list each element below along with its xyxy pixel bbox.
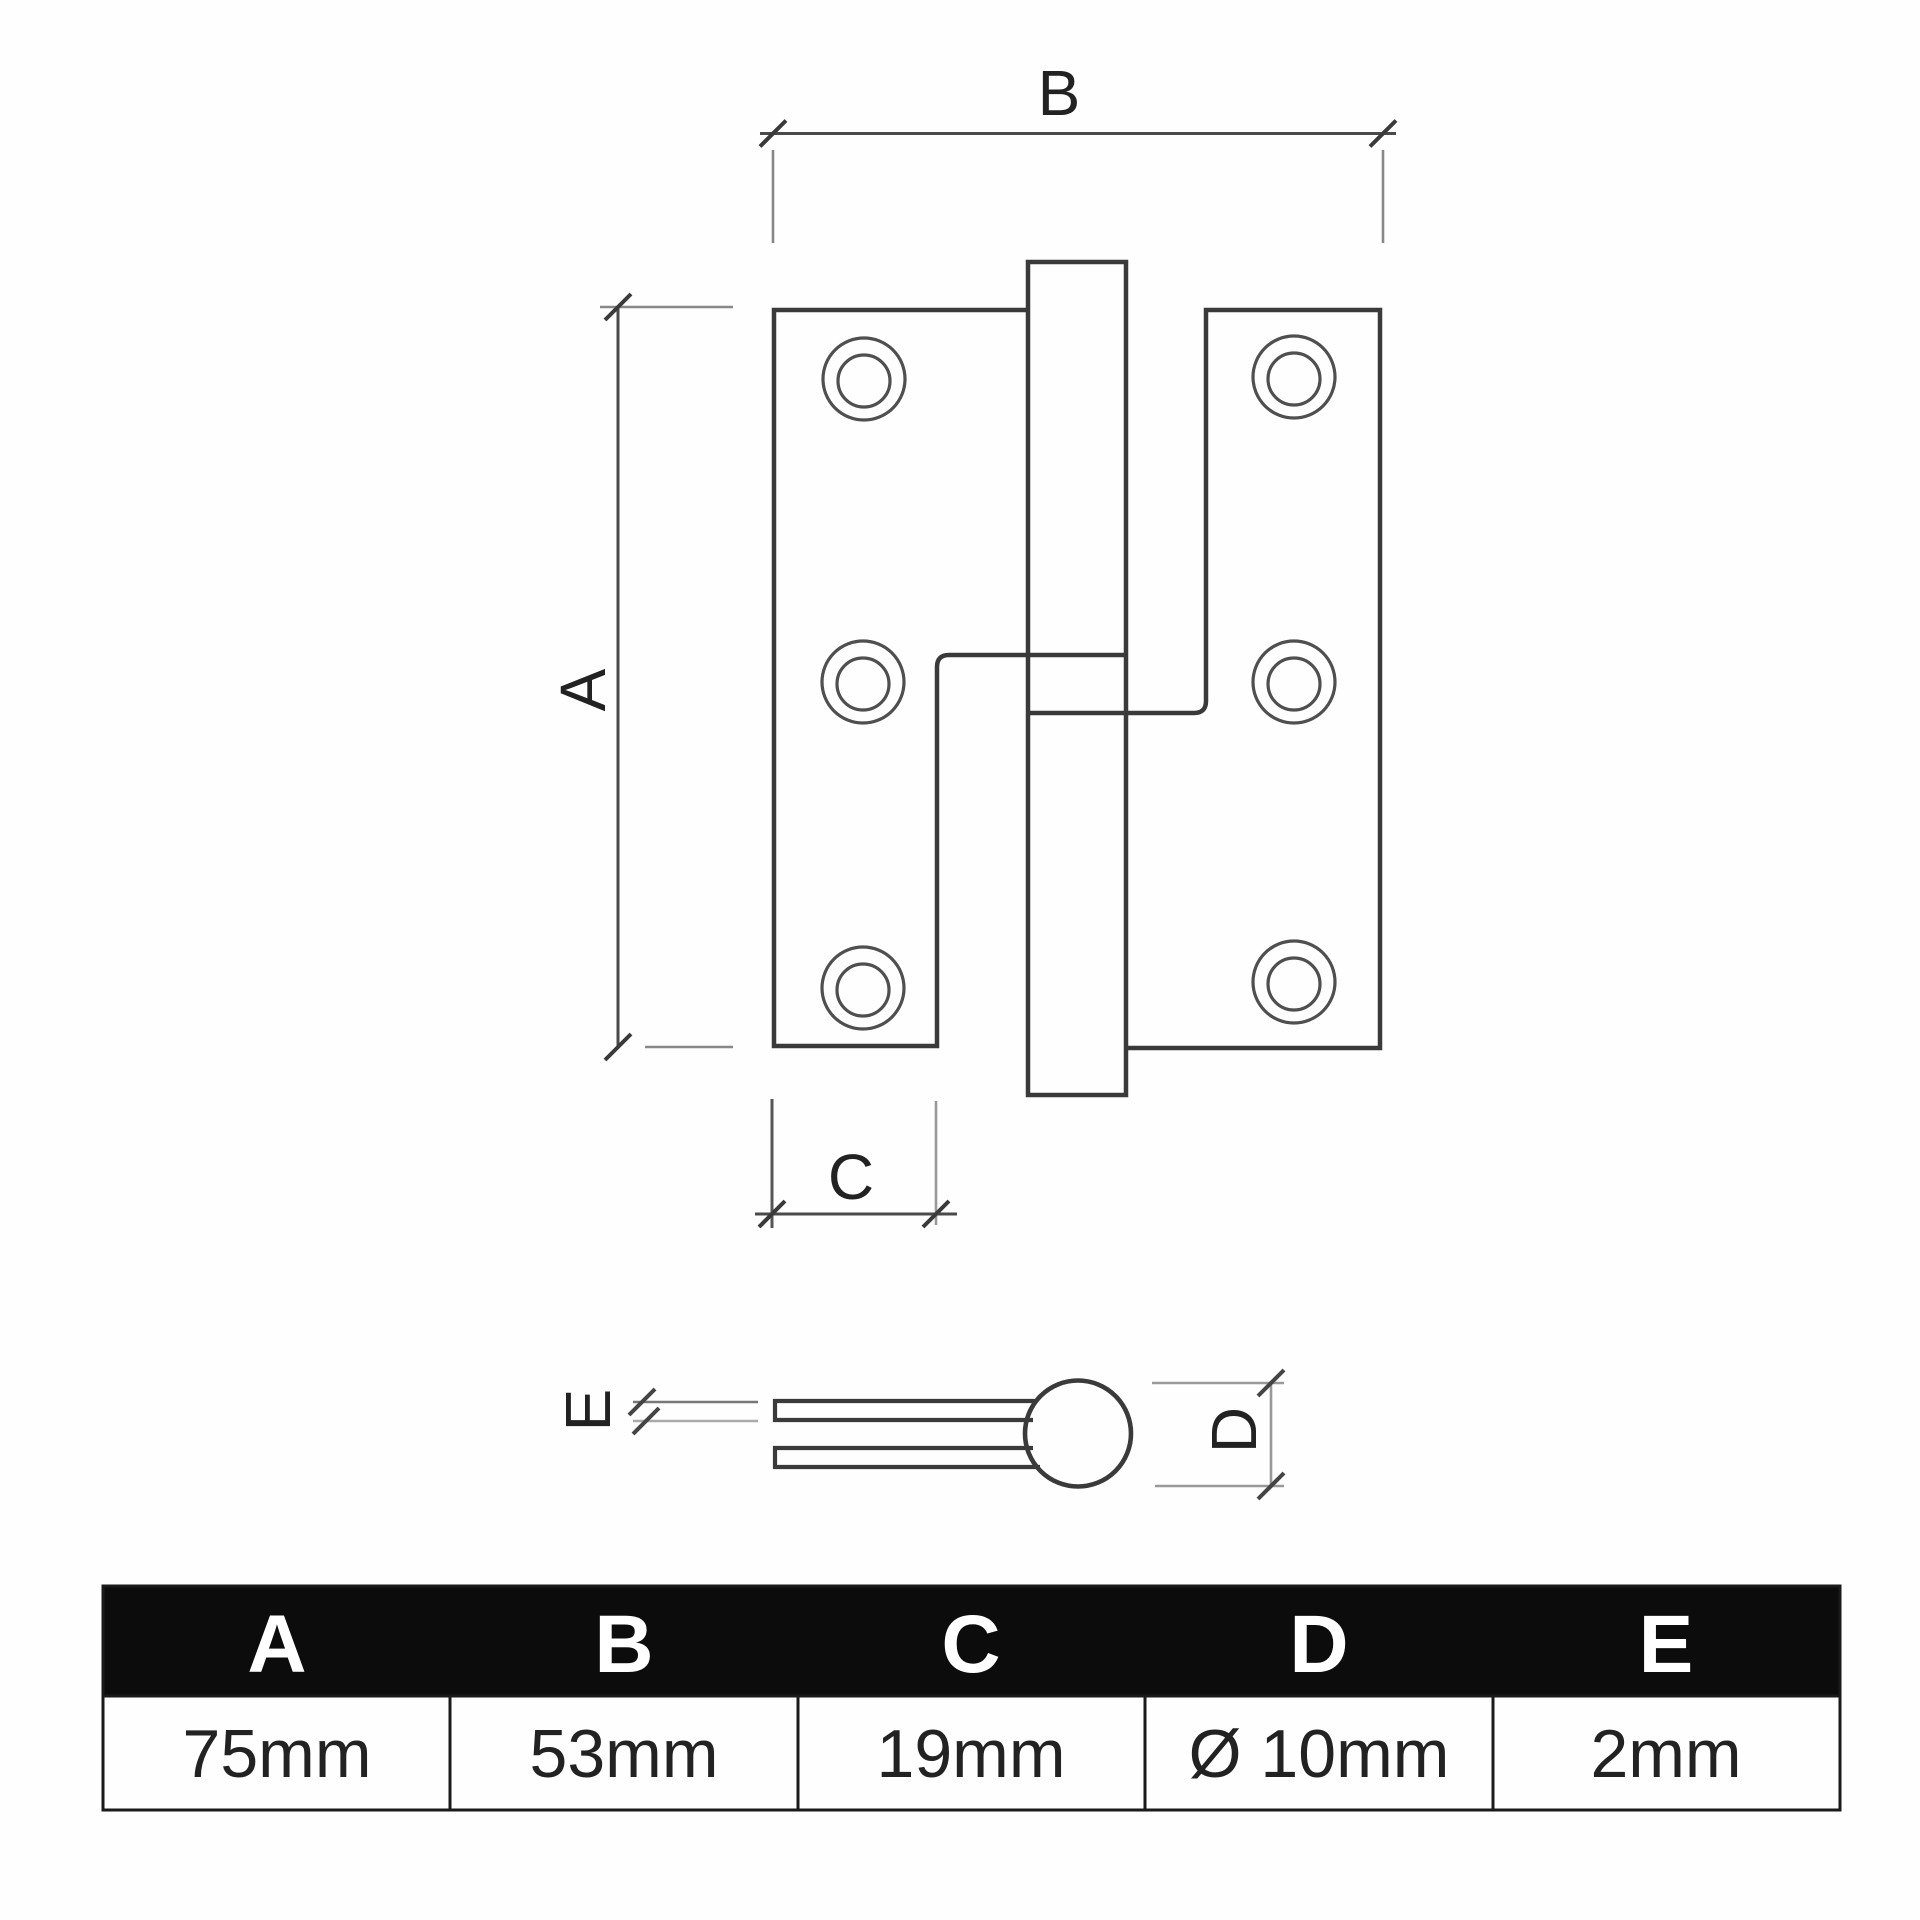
svg-text:53mm: 53mm <box>530 1716 719 1792</box>
svg-text:Ø 10mm: Ø 10mm <box>1189 1716 1450 1792</box>
svg-text:B: B <box>594 1599 653 1690</box>
svg-text:D: D <box>1198 1407 1270 1453</box>
svg-text:D: D <box>1289 1599 1348 1690</box>
svg-text:2mm: 2mm <box>1590 1716 1741 1792</box>
svg-text:C: C <box>941 1599 1000 1690</box>
svg-text:A: A <box>547 668 619 711</box>
svg-text:75mm: 75mm <box>183 1716 372 1792</box>
svg-text:E: E <box>1639 1599 1694 1690</box>
svg-text:E: E <box>552 1389 624 1432</box>
svg-text:19mm: 19mm <box>877 1716 1066 1792</box>
svg-text:A: A <box>247 1599 306 1690</box>
svg-text:C: C <box>828 1141 874 1213</box>
svg-text:B: B <box>1038 57 1081 129</box>
